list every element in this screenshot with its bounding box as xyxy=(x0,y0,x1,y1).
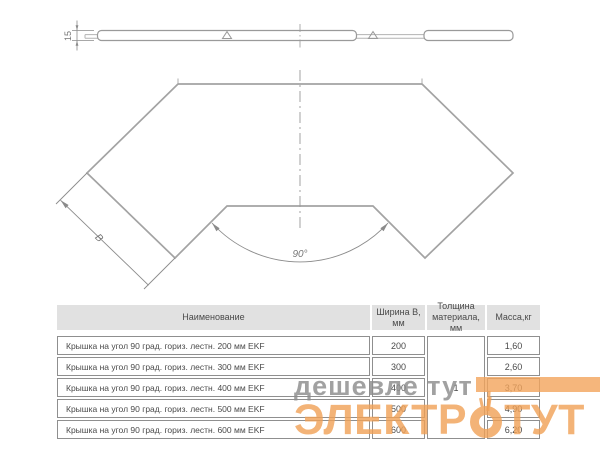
cell-mass: 4,90 xyxy=(487,399,540,418)
width-dimension-label: B xyxy=(92,232,105,245)
cell-name: Крышка на угол 90 град. гориз. лестн. 20… xyxy=(57,336,370,355)
header-mass: Масса,кг xyxy=(487,305,540,330)
cell-mass: 3,70 xyxy=(487,378,540,397)
cell-name: Крышка на угол 90 град. гориз. лестн. 30… xyxy=(57,357,370,376)
spec-table-header: Наименование Ширина B, мм Толщина матери… xyxy=(57,305,540,330)
height-dimension xyxy=(72,21,94,51)
header-thickness: Толщина материала, мм xyxy=(427,305,485,330)
cell-width: 400 xyxy=(372,378,425,397)
angle-dimension-label: 90° xyxy=(292,249,307,260)
product-drawing-page: 15 90° B xyxy=(0,0,600,450)
plan-view: 90° B xyxy=(56,70,513,289)
cell-width: 200 xyxy=(372,336,425,355)
cell-mass: 2,60 xyxy=(487,357,540,376)
side-view: 15 xyxy=(63,21,513,51)
cell-name: Крышка на угол 90 град. гориз. лестн. 40… xyxy=(57,378,370,397)
cell-name: Крышка на угол 90 град. гориз. лестн. 60… xyxy=(57,420,370,439)
cell-mass: 6,20 xyxy=(487,420,540,439)
spec-table-body: Крышка на угол 90 град. гориз. лестн. 20… xyxy=(57,336,540,439)
height-dimension-label: 15 xyxy=(63,31,73,41)
cell-width: 500 xyxy=(372,399,425,418)
header-name: Наименование xyxy=(57,305,370,330)
cell-width: 600 xyxy=(372,420,425,439)
technical-drawing: 15 90° B xyxy=(0,0,600,300)
spec-table: Наименование Ширина B, мм Толщина матери… xyxy=(57,305,540,441)
side-view-right-section xyxy=(424,31,513,41)
cell-name: Крышка на угол 90 град. гориз. лестн. 50… xyxy=(57,399,370,418)
cell-thickness-merged: 1 xyxy=(427,336,485,439)
cell-mass: 1,60 xyxy=(487,336,540,355)
cell-width: 300 xyxy=(372,357,425,376)
header-width: Ширина B, мм xyxy=(372,305,425,330)
